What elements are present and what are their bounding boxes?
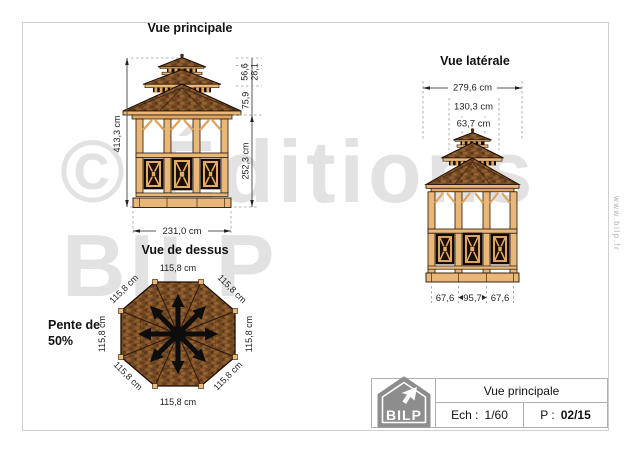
top-view-title: Vue de dessus (95, 243, 275, 257)
top-view-drawing: 115,8 cm 115,8 cm 115,8 cm 115,8 cm 115,… (90, 256, 270, 424)
dim-main-wall: 252,3 cm (241, 142, 251, 179)
gazebo-front (123, 54, 241, 208)
dim-octagon-top: 115,8 cm (160, 263, 196, 273)
main-view-title: Vue principale (100, 21, 280, 35)
side-view-dimensions-bottom: 67,6 95,7 67,6 (432, 286, 514, 304)
dim-side-cupola: 63,7 cm (457, 119, 491, 130)
gazebo-side (426, 128, 519, 282)
dim-side-mid: 130,3 cm (454, 102, 493, 113)
logo-text: BILP (386, 407, 422, 423)
corner-braces (143, 120, 221, 130)
dim-main-cupola: 28,1 (250, 63, 260, 81)
title-block-view-name: Vue principale (436, 379, 607, 403)
dim-main-tier2: 56,6 (240, 63, 250, 81)
dim-main-width: 231,0 cm (162, 226, 201, 237)
corner-braces (435, 193, 510, 203)
title-block: BILP Vue principale Ech : 1/60 P : 02/15 (371, 378, 608, 428)
page-value: 02/15 (561, 408, 591, 422)
scale-value: 1/60 (485, 408, 508, 422)
dim-side-bottom-right: 67,6 (491, 293, 510, 304)
roof-octagon (119, 280, 238, 389)
scale-label: Ech : (451, 408, 478, 422)
dim-main-total-height: 413,3 cm (112, 115, 122, 152)
dim-octagon-bottom: 115,8 cm (160, 397, 196, 407)
railing-panel-right (491, 234, 509, 264)
slope-arrows (138, 294, 218, 374)
dim-side-bottom-left: 67,6 (436, 293, 455, 304)
scale-cell: Ech : 1/60 (436, 403, 524, 427)
title-block-right: Vue principale Ech : 1/60 P : 02/15 (436, 379, 607, 427)
railing-panel-left (436, 234, 454, 264)
railing-panel-right (201, 159, 220, 189)
bilp-logo: BILP (376, 376, 432, 430)
railing-panel-center (172, 158, 192, 190)
page-cell: P : 02/15 (524, 403, 607, 427)
railing-panel-left (144, 159, 163, 189)
dim-side-width: 279,6 cm (453, 83, 492, 94)
website-url: www.bilp.fr (612, 196, 621, 251)
railing-panel-center (463, 233, 482, 265)
dim-main-roof: 75,9 (241, 92, 251, 110)
plan-page: © Éditions BILP www.bilp.fr Vue principa… (0, 0, 640, 452)
dim-octagon-left: 115,8 cm (97, 316, 107, 352)
dim-octagon-right: 115,8 cm (244, 316, 254, 352)
side-view-drawing: 279,6 cm 130,3 cm 63,7 cm (405, 50, 545, 310)
main-view-drawing: 231,0 cm 413,3 cm 56,6 28,1 75,9 252,3 c… (100, 42, 280, 242)
dim-side-bottom-center: 95,7 (463, 293, 482, 304)
page-label: P : (540, 408, 554, 422)
logo-cell: BILP (372, 379, 436, 427)
